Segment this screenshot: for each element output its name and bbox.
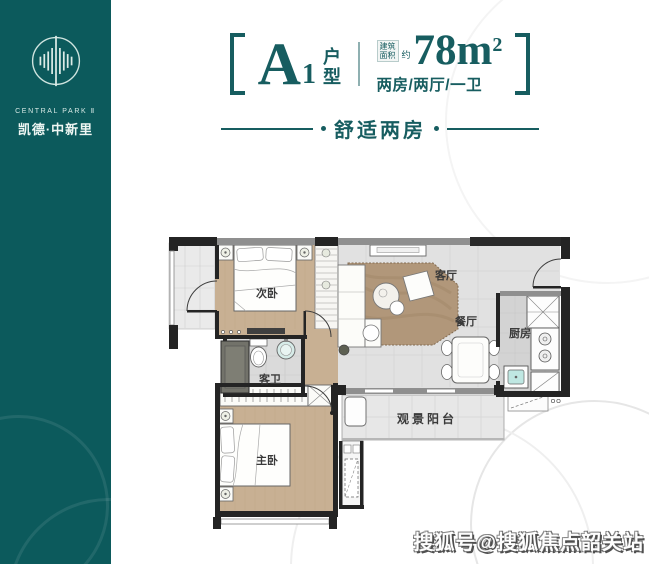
unit-type-words: 户 型 — [323, 47, 341, 87]
brand-name-en: CENTRAL PARK Ⅱ — [0, 107, 111, 115]
vertical-divider — [358, 42, 360, 86]
brand-logo-icon — [17, 22, 95, 100]
label-view-balcony: 观景阳台 — [397, 411, 457, 426]
unit-area-row: 建筑 面积 约 78m 2 — [377, 34, 503, 68]
tagline-dot-left — [321, 126, 326, 131]
main-panel: A 1 户 型 建筑 面积 约 78m 2 两房/两厅/一卫 舒适 — [111, 0, 649, 564]
unit-word-bottom: 型 — [323, 67, 341, 87]
label-secondary-bedroom: 次卧 — [256, 286, 278, 300]
area-label: 建筑 面积 — [377, 40, 399, 62]
brand-logo: CENTRAL PARK Ⅱ 凯德·中新里 — [0, 0, 111, 138]
area-label-line2: 面积 — [380, 51, 396, 60]
label-master-bedroom: 主卧 — [256, 453, 278, 467]
balcony-cabinet — [345, 397, 366, 426]
unit-area: 建筑 面积 约 78m 2 两房/两厅/一卫 — [377, 34, 503, 95]
bathroom-door-leaf — [304, 311, 307, 337]
label-living-room: 客厅 — [434, 268, 457, 282]
left-bracket — [230, 33, 245, 95]
area-approx: 约 — [402, 48, 411, 61]
tagline-dot-right — [434, 126, 439, 131]
area-label-line1: 建筑 — [380, 42, 396, 51]
watermark-text: 搜狐号@搜狐焦点韶关站 — [413, 526, 644, 555]
label-kitchen: 厨房 — [509, 326, 531, 340]
tagline-text: 舒适两房 — [334, 114, 426, 143]
balcony-door-leaf — [187, 310, 217, 313]
layout-spec: 两房/两厅/一卫 — [377, 73, 503, 95]
brand-sidebar: CENTRAL PARK Ⅱ 凯德·中新里 — [0, 0, 111, 564]
unit-word-top: 户 — [323, 47, 341, 67]
right-bracket — [515, 33, 530, 95]
label-guest-bathroom: 客卫 — [258, 372, 281, 386]
brand-name-cn: 凯德·中新里 — [0, 119, 111, 138]
unit-letter: A — [258, 40, 301, 88]
tagline-row: 舒适两房 — [111, 114, 649, 143]
unit-header: A 1 户 型 建筑 面积 约 78m 2 两房/两厅/一卫 — [111, 33, 649, 95]
floorplan-drawing: 次卧 客厅 餐厅 厨房 客卫 主卧 观景阳台 — [165, 233, 595, 533]
unit-name: A 1 户 型 — [258, 40, 341, 88]
tagline-line-left — [221, 128, 313, 130]
entry-door-leaf — [533, 286, 561, 289]
label-dining-room: 餐厅 — [454, 314, 477, 328]
area-superscript: 2 — [492, 36, 502, 54]
unit-number: 1 — [302, 62, 316, 88]
area-value: 78m — [414, 34, 493, 68]
tagline-line-right — [447, 128, 539, 130]
